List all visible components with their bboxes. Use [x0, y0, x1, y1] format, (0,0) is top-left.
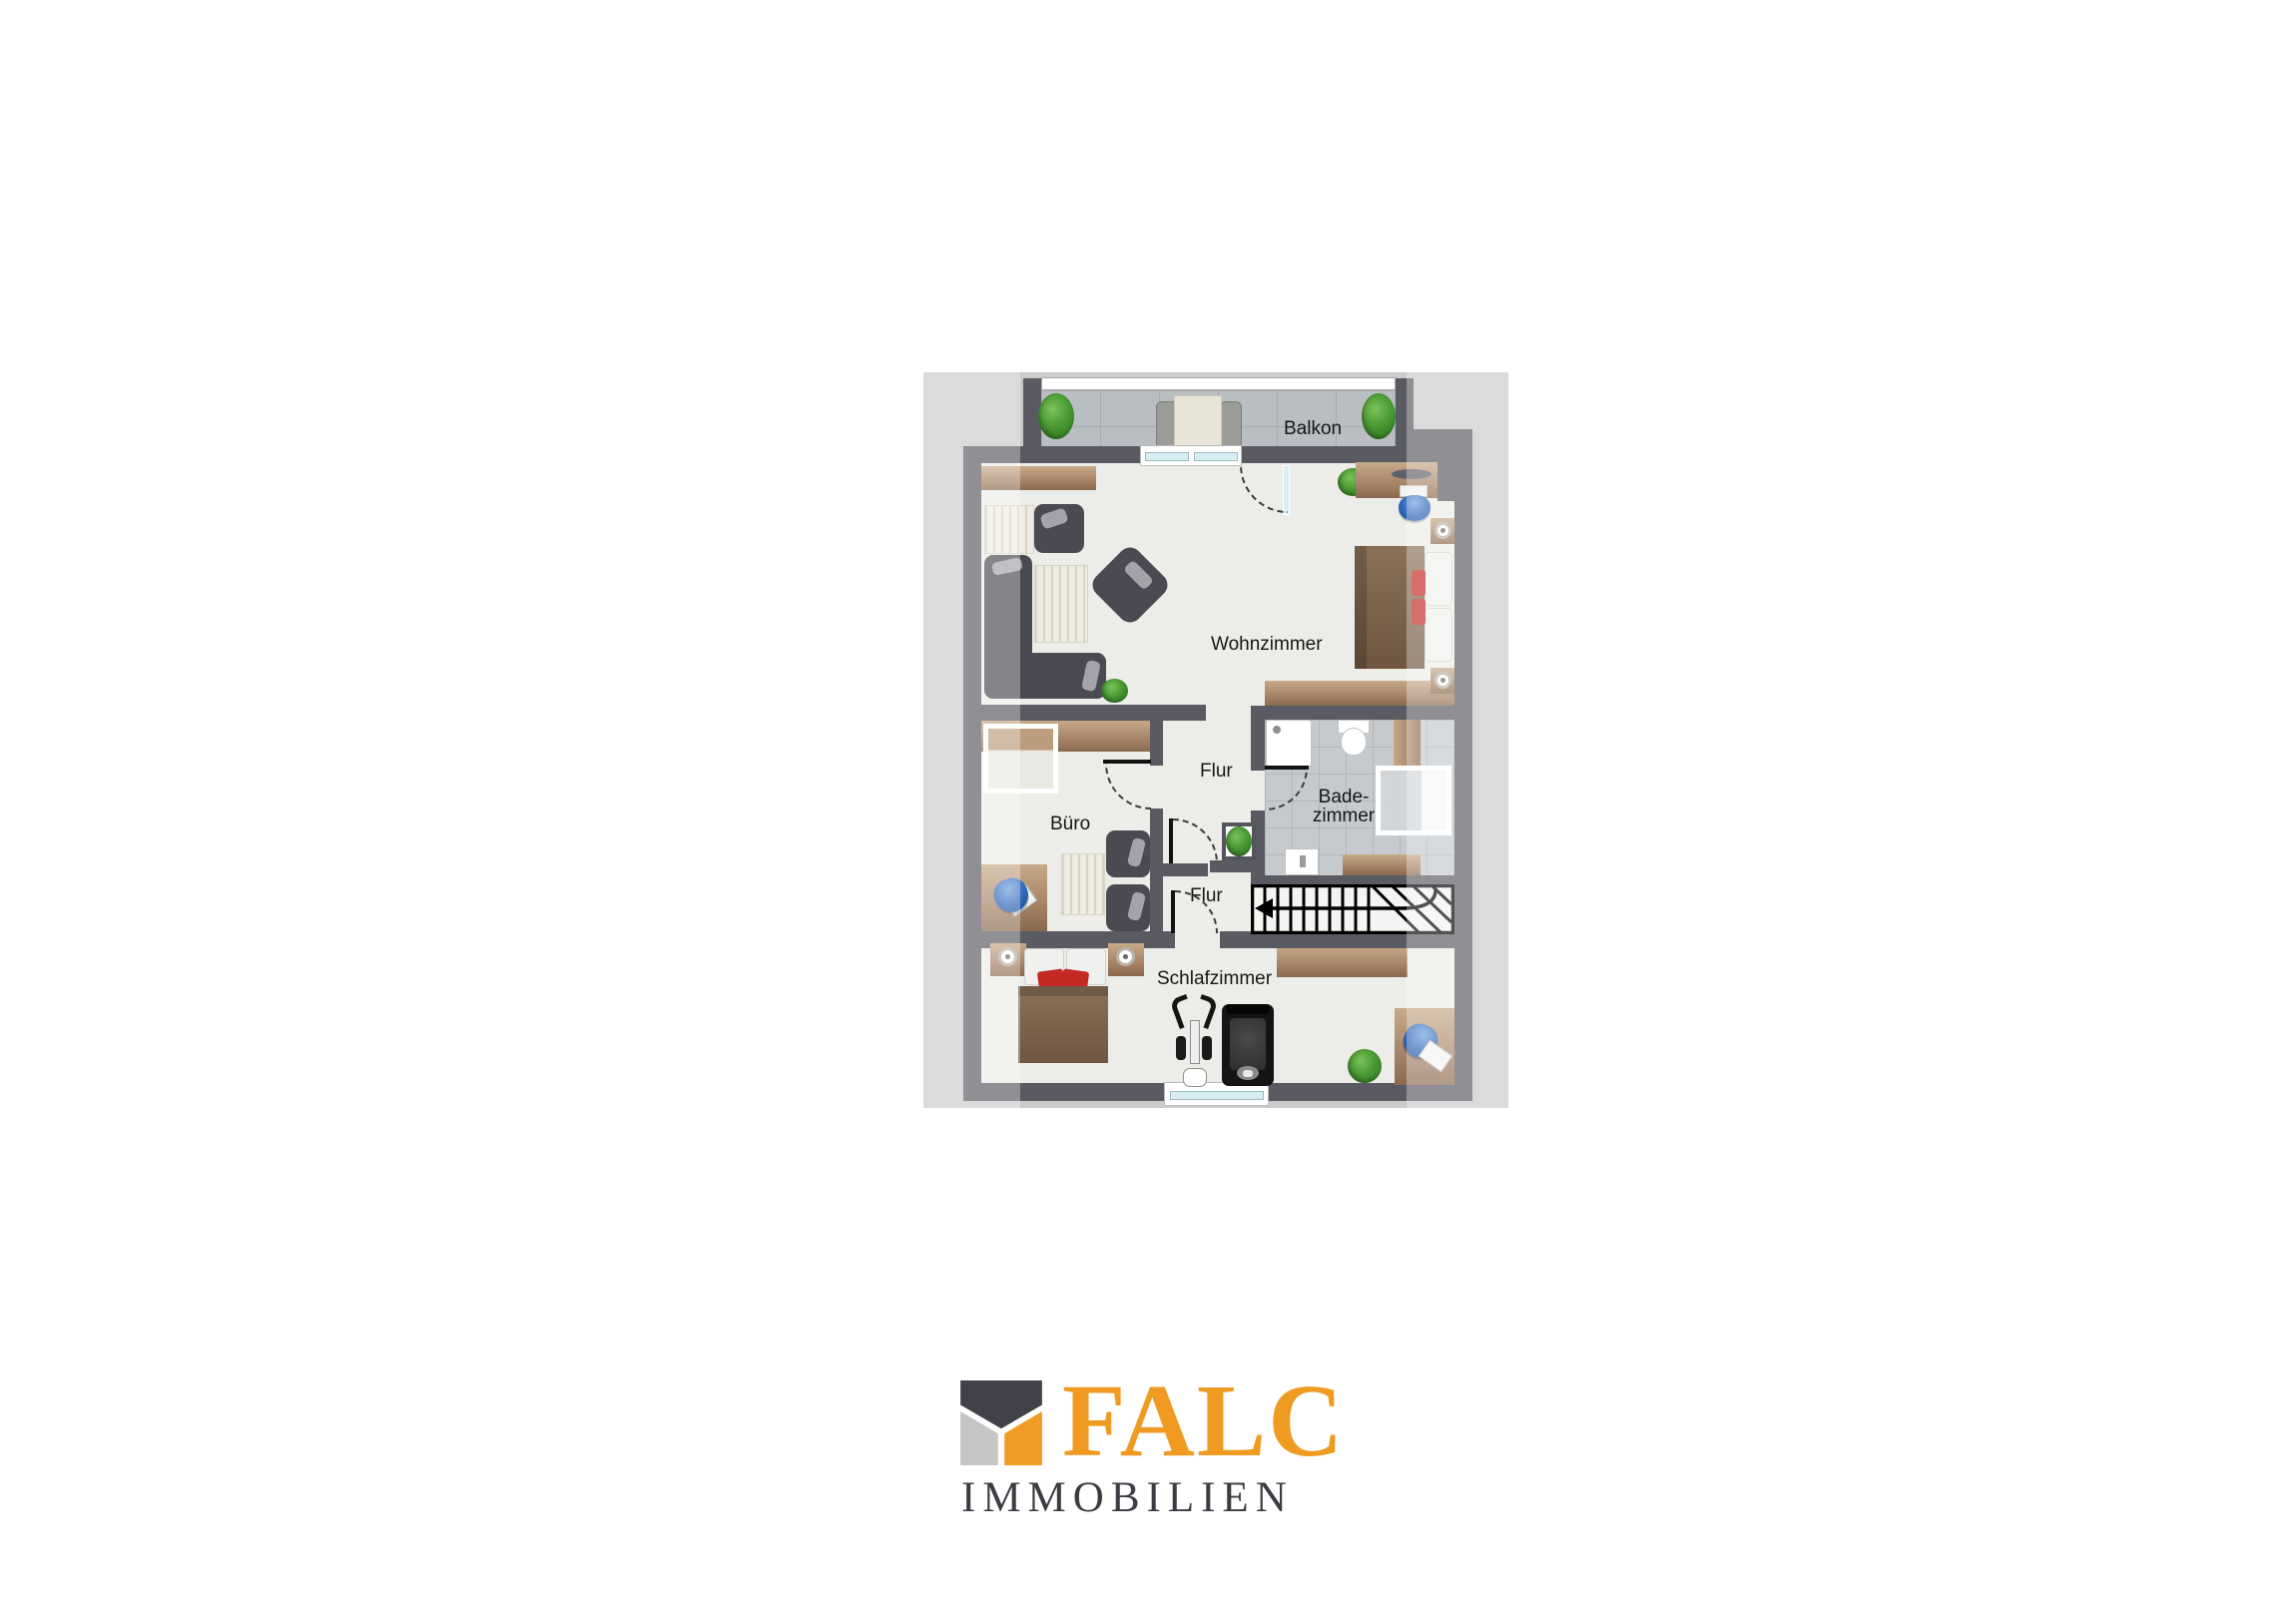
bedroom-sideboard — [1277, 946, 1408, 977]
balcony-plant-right — [1362, 393, 1396, 439]
page: Balkon Wohnzimmer Flur Bade- zimmer Büro… — [0, 0, 2296, 1623]
bedroom-door-leaf — [1171, 890, 1175, 933]
label-hall-lower: Flur — [1190, 886, 1223, 905]
bedroom-plant — [1348, 1049, 1382, 1083]
balcony-window — [1140, 445, 1242, 466]
living-armchair — [1034, 504, 1084, 553]
office-table — [1061, 853, 1105, 915]
treadmill — [1222, 1004, 1274, 1086]
wall-office-hall-a — [1150, 721, 1163, 766]
office-door-leaf — [1103, 760, 1151, 764]
toilet-bowl — [1341, 728, 1367, 756]
bedroom-bed — [1018, 986, 1108, 1063]
label-living: Wohnzimmer — [1211, 635, 1323, 654]
label-bath: Bade- zimmer — [1303, 788, 1385, 825]
wall-hall-divider — [1150, 863, 1208, 876]
roof-slope-band-right — [1407, 372, 1508, 1108]
elliptical-trainer — [1172, 996, 1216, 1088]
label-hall-upper: Flur — [1200, 762, 1233, 781]
falc-logo: FALC IMMOBILIEN — [956, 1375, 1396, 1525]
bedroom-lamp-right — [1116, 947, 1135, 966]
office-chair-1 — [1106, 830, 1150, 877]
falc-logo-icon — [960, 1380, 1042, 1465]
logo-subtitle-text: IMMOBILIEN — [961, 1476, 1294, 1519]
label-bath-line1: Bade- — [1319, 787, 1370, 808]
label-bedroom: Schlafzimmer — [1157, 969, 1272, 988]
coffee-table — [1034, 565, 1088, 643]
hall-door-leaf — [1169, 818, 1173, 863]
balcony-chair-right — [1220, 401, 1242, 449]
label-office: Büro — [1050, 814, 1090, 833]
balcony-plant-left — [1038, 393, 1074, 439]
balcony-railing — [1041, 377, 1396, 390]
logo-brand-text: FALC — [1062, 1369, 1345, 1473]
hall-plant — [1226, 826, 1252, 856]
label-balcony: Balkon — [1284, 419, 1342, 438]
office-chair-2 — [1106, 884, 1150, 931]
label-bath-line2: zimmer — [1313, 806, 1375, 826]
wall-bath-left-a — [1251, 706, 1265, 771]
shower — [1266, 720, 1312, 767]
roof-slope-band-left — [923, 372, 1020, 1108]
sink — [1285, 848, 1319, 875]
living-plant-small — [1101, 679, 1128, 703]
